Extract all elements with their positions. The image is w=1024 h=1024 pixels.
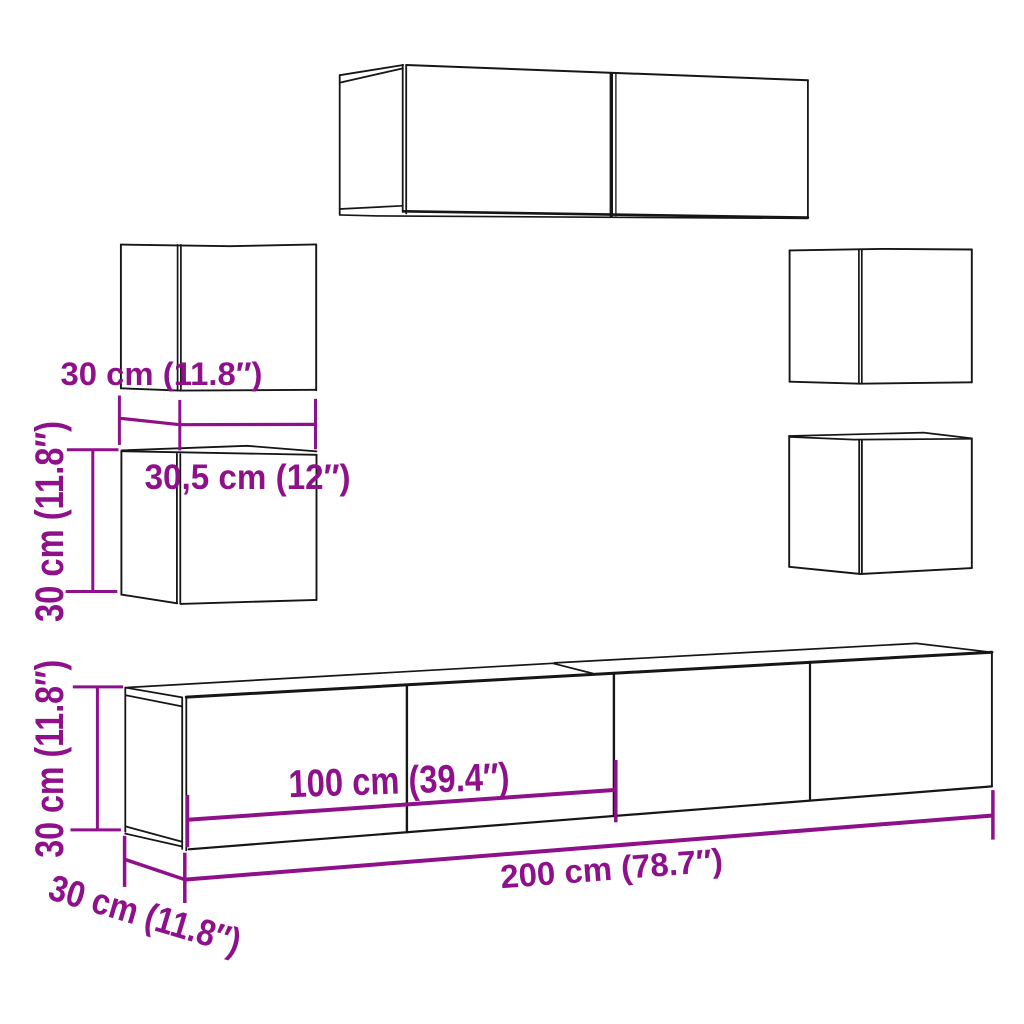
svg-text:100 cm (39.4″): 100 cm (39.4″) [288,756,510,807]
svg-text:30 cm (11.8″): 30 cm (11.8″) [61,356,263,392]
svg-text:30 cm (11.8″): 30 cm (11.8″) [28,421,72,622]
svg-text:30,5 cm (12″): 30,5 cm (12″) [145,457,351,497]
svg-text:30 cm (11.8″): 30 cm (11.8″) [44,867,245,963]
svg-text:200 cm (78.7″): 200 cm (78.7″) [499,841,724,895]
svg-text:30 cm (11.8″): 30 cm (11.8″) [28,660,72,858]
